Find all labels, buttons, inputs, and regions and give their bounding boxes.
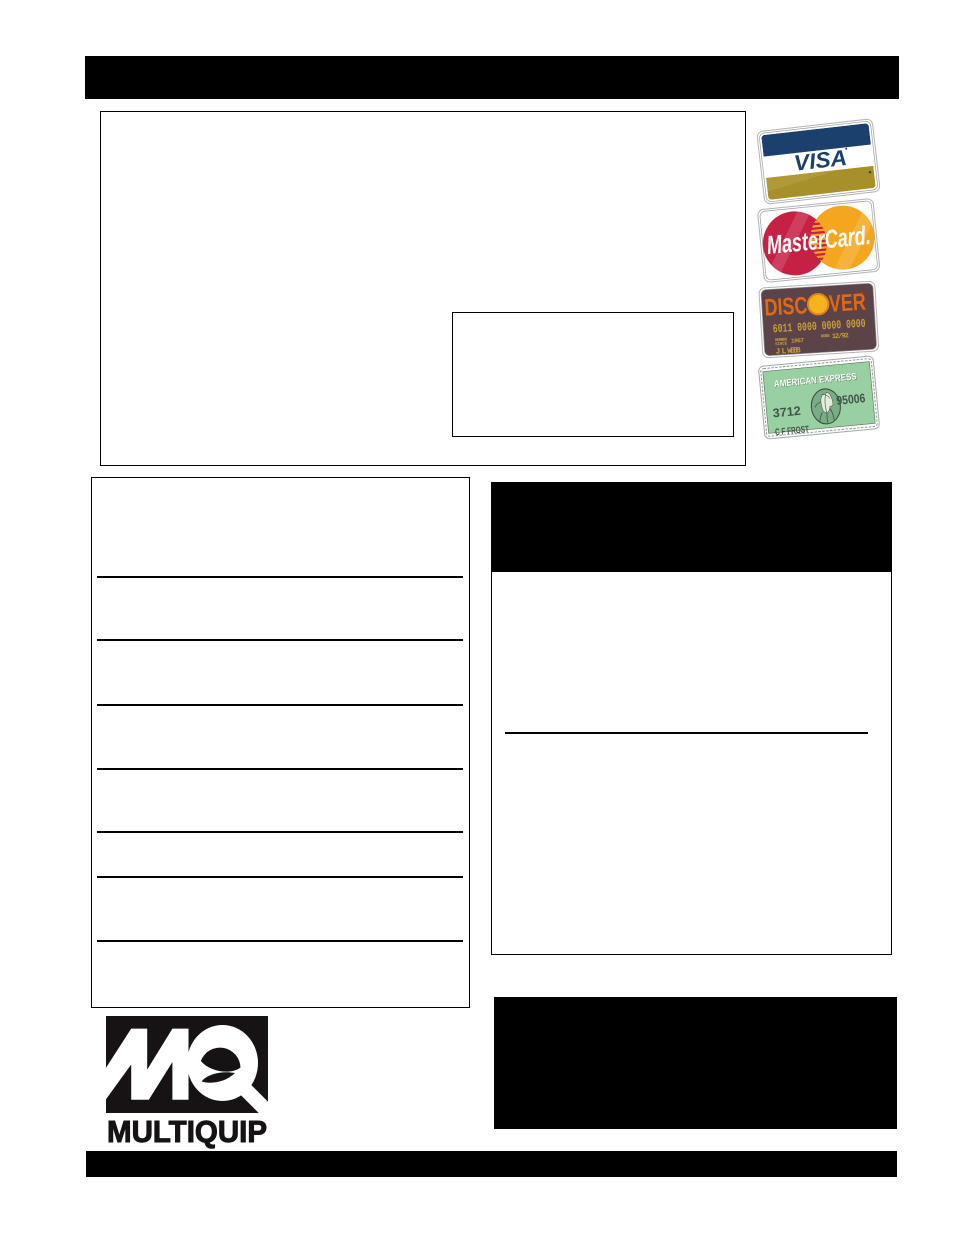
svg-text:DISC: DISC bbox=[764, 292, 809, 322]
svg-text:95006: 95006 bbox=[836, 391, 866, 408]
svg-text:C F FROST: C F FROST bbox=[775, 424, 810, 438]
svg-text:12/92: 12/92 bbox=[832, 332, 849, 341]
svg-text:J L WEBB: J L WEBB bbox=[775, 346, 801, 357]
svg-text:MULTIQUIP: MULTIQUIP bbox=[107, 1115, 267, 1149]
svg-text:VER: VER bbox=[828, 289, 867, 318]
svg-text:DATES: DATES bbox=[821, 335, 831, 340]
svg-text:3712: 3712 bbox=[772, 404, 801, 421]
svg-text:1967: 1967 bbox=[791, 337, 805, 345]
